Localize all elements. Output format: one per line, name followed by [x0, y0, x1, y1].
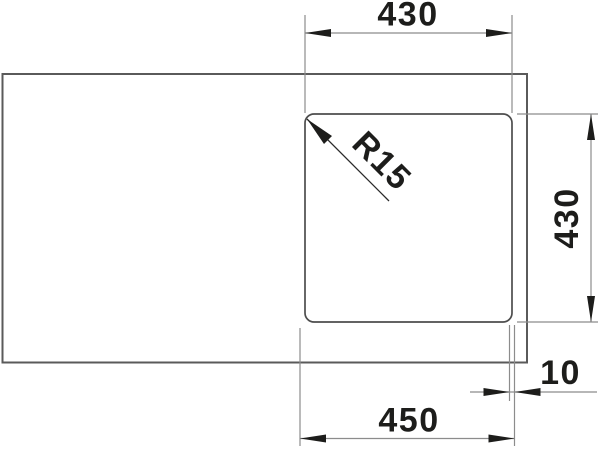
arrow-left-icon: [300, 435, 326, 443]
dim-top-width: 430: [305, 0, 512, 113]
dim-bottom-width-label: 450: [378, 402, 439, 440]
arrow-right-icon: [486, 29, 512, 37]
dim-right-height-label: 430: [548, 187, 586, 248]
sink-technical-drawing: 430 430 R15 10: [0, 0, 600, 449]
dim-edge-offset: 10: [470, 325, 597, 446]
arrow-right-icon: [484, 388, 510, 396]
corner-radius-label: R15: [345, 124, 419, 198]
dim-top-width-label: 430: [377, 0, 438, 34]
bowl-cutout-outline: [305, 114, 512, 322]
dim-bottom-width: 450: [300, 328, 515, 446]
arrow-up-icon: [587, 114, 595, 140]
countertop: [3, 74, 528, 363]
arrow-right-icon: [489, 435, 515, 443]
arrow-left-icon: [305, 29, 331, 37]
radius-callout: R15: [307, 119, 419, 201]
arrow-down-icon: [587, 296, 595, 322]
drawing-canvas: 430 430 R15 10: [0, 0, 600, 449]
dim-edge-offset-label: 10: [540, 354, 581, 392]
dim-right-height: 430: [517, 114, 598, 322]
countertop-outline: [3, 74, 528, 363]
arrow-left-icon: [515, 388, 541, 396]
bowl-cutout: [305, 114, 512, 322]
